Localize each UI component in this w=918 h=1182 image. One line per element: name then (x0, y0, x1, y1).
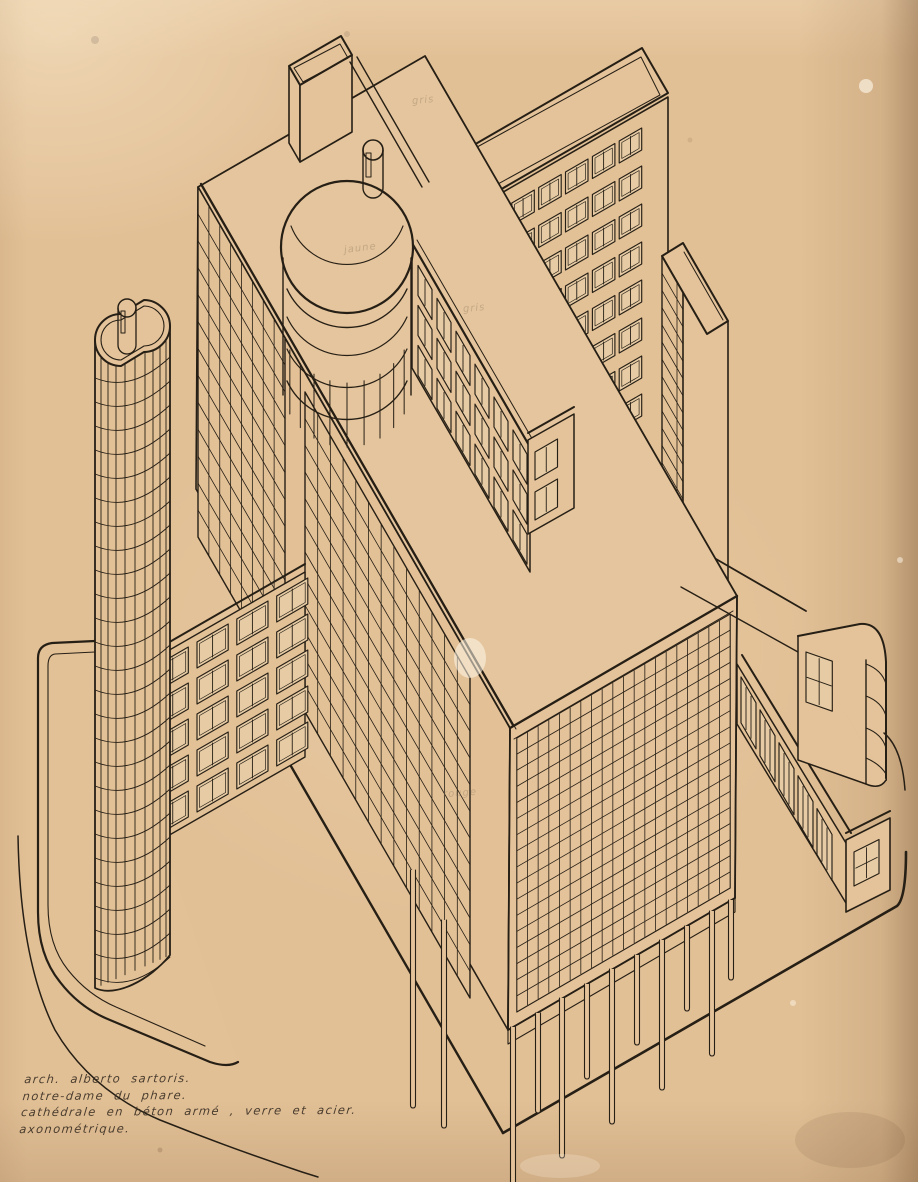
piloti-column (411, 870, 416, 1108)
piloti-column (729, 900, 734, 980)
pencil-note: gris (412, 94, 435, 107)
wing-end-block (846, 811, 890, 912)
piloti-column (585, 984, 590, 1079)
axonometric-drawing (0, 0, 918, 1182)
piloti-column (511, 1027, 516, 1182)
bell-tower (95, 299, 170, 991)
caption-block: arch. alberto sartoris. notre-dame du ph… (19, 1069, 361, 1137)
piloti-column (536, 1013, 541, 1113)
scanned-drawing-page: arch. alberto sartoris. notre-dame du ph… (0, 0, 918, 1182)
pavilion-window (806, 652, 832, 711)
piloti-column (685, 926, 690, 1011)
piloti-column (660, 940, 665, 1090)
pavilion-ground-curve (884, 733, 905, 790)
piloti-column (710, 911, 715, 1056)
round-pavilion (798, 624, 905, 790)
piloti-column (610, 969, 615, 1124)
caption-line-materials: cathédrale en béton armé , verre et acie… (20, 1102, 357, 1121)
piloti-column (560, 998, 565, 1158)
caption-line-projection: axonométrique. (19, 1118, 356, 1137)
piloti-column (442, 920, 447, 1128)
piloti-column (635, 955, 640, 1045)
pencil-note: gris (463, 302, 486, 315)
